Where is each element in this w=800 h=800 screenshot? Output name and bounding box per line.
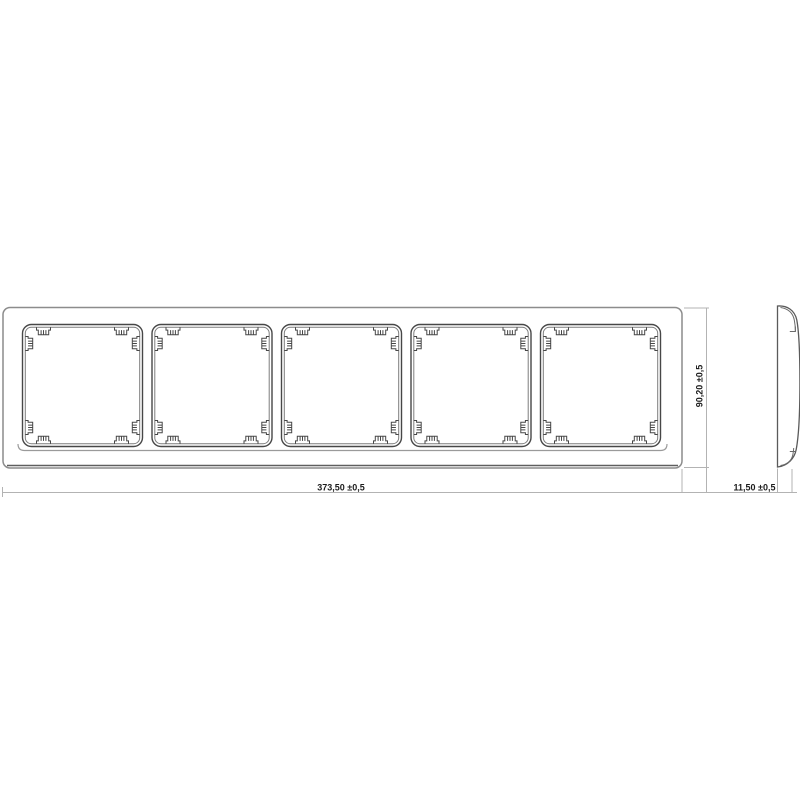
dimension-height-label: 90,20 ±0,5 <box>695 365 705 407</box>
dimension-width-label: 373,50 ±0,5 <box>317 483 364 493</box>
frame-technical-drawing: 373,50 ±0,5 90,20 ±0,5 11,50 ±0,5 <box>0 0 800 800</box>
drawing-background <box>0 0 800 800</box>
dimension-depth-label: 11,50 ±0,5 <box>734 483 776 493</box>
technical-drawing-canvas: 373,50 ±0,5 90,20 ±0,5 11,50 ±0,5 <box>0 0 800 800</box>
